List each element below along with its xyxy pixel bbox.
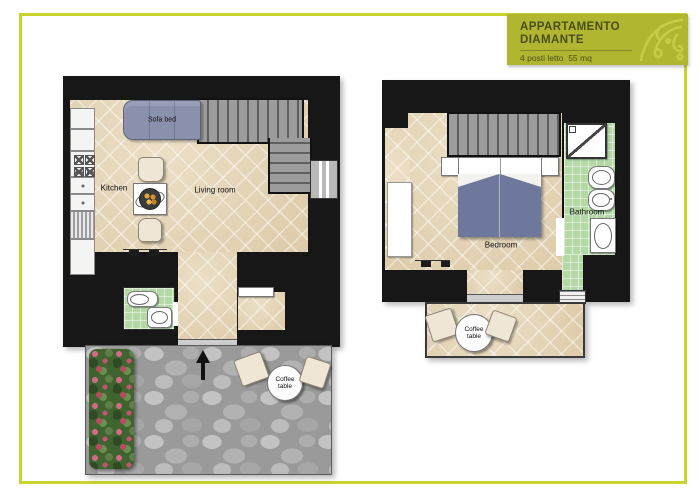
apartment-title-line1: APPARTAMENTO [520, 21, 620, 33]
wardrobe [387, 182, 412, 257]
bathroom-label: Bathroom [570, 208, 605, 217]
toilet-icon [127, 291, 158, 307]
sofa-bed-label: Sofa bed [148, 117, 176, 124]
ground-floor-bathroom [123, 287, 175, 330]
kitchen-cabinet [70, 239, 95, 275]
shower-icon [566, 123, 607, 159]
apartment-title-line2: DIAMANTE [520, 34, 584, 46]
entrance-arrow-icon [196, 350, 210, 382]
bathtub-sink-icon [590, 218, 616, 253]
staircase-lower-flight [268, 138, 312, 194]
bedroom-floor [467, 270, 523, 295]
bathroom-corridor [562, 255, 583, 295]
living-room-label: Living room [194, 186, 235, 195]
shower-head [569, 126, 576, 133]
dining-chair [138, 157, 164, 182]
sofa-bed: Sofa bed [123, 100, 201, 140]
staircase [447, 112, 561, 157]
radiator-icon [415, 260, 450, 267]
bedroom-label: Bedroom [485, 241, 517, 250]
kitchen-cabinet [70, 108, 95, 129]
header: APPARTAMENTO DIAMANTE 4 posti letto 55 m… [507, 14, 688, 65]
alcove-shelf [238, 287, 274, 297]
sheet-fold [458, 174, 499, 187]
floorplan-page: APPARTAMENTO DIAMANTE 4 posti letto 55 m… [0, 0, 700, 500]
stove-icon [70, 151, 95, 177]
dining-table [133, 183, 167, 215]
floral-corner-ornament-icon [635, 17, 685, 63]
toilet-icon [588, 166, 615, 189]
kitchen-cabinet [70, 129, 95, 151]
coffee-table-label: Coffee [268, 376, 302, 383]
sink-icon [147, 307, 172, 328]
bathroom-door-opening [556, 218, 564, 256]
coffee-table-label: table [268, 383, 302, 390]
upper-floor-walls [382, 270, 470, 300]
nightstand [541, 157, 559, 176]
ground-floor-plan: Sofa bed Kitchen Living room [63, 76, 340, 347]
kitchen-counter [70, 108, 95, 275]
flower-hedge [89, 349, 134, 469]
sheet-fold [500, 174, 541, 187]
upper-floor-terrace: Coffee table [425, 302, 585, 358]
window-icon [310, 160, 338, 199]
hallway-floor [178, 252, 237, 347]
dining-chair [138, 218, 162, 242]
alcove-floor [238, 292, 285, 330]
kitchen-drawer [70, 194, 95, 211]
food-plate-icon [139, 188, 161, 210]
double-bed [458, 174, 541, 237]
kitchen-label: Kitchen [101, 184, 128, 193]
radiator-icon [123, 249, 167, 256]
terrace-chair [424, 307, 459, 342]
kitchen-sink-icon [70, 211, 95, 239]
kitchen-drawer [70, 177, 95, 194]
terrace-chair [298, 356, 331, 390]
terrace-chair [233, 351, 270, 387]
upper-floor-plan: Bedroom Bathroom [382, 80, 630, 302]
header-divider [520, 50, 632, 51]
apartment-subtitle: 4 posti letto 55 mq [520, 53, 592, 63]
coffee-table: Coffee table [267, 365, 303, 401]
ground-floor-terrace: Coffee table [85, 345, 332, 475]
bathroom-door-opening [173, 302, 178, 326]
